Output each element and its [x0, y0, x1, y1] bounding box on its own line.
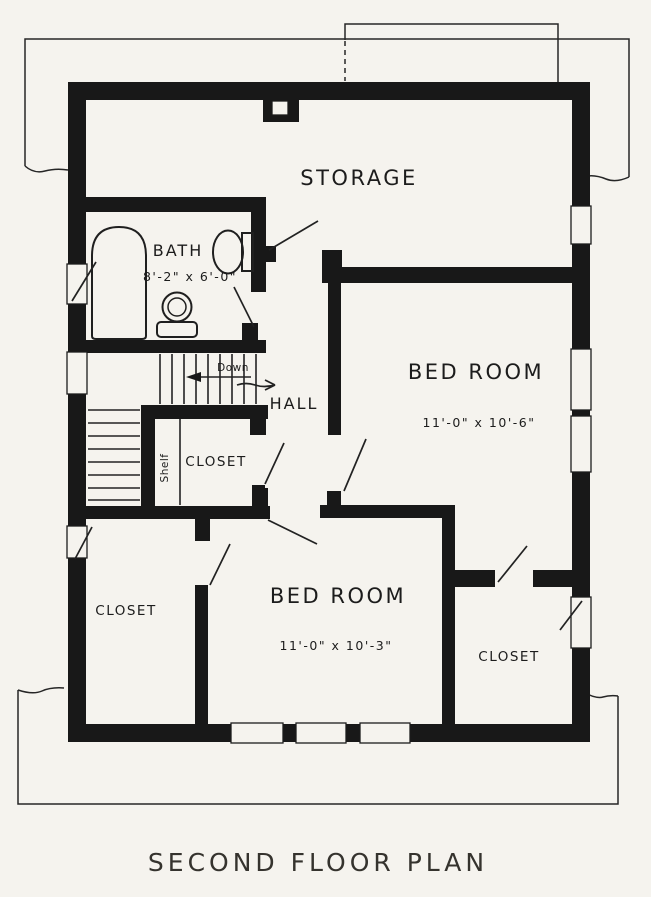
window [67, 352, 87, 394]
wall-hall-bottom-left [68, 506, 270, 519]
bathtub-icon [92, 227, 146, 339]
door-leaf [234, 287, 254, 327]
closet-left-label: CLOSET [95, 603, 156, 619]
door-leaf [269, 221, 318, 250]
window [571, 416, 591, 472]
bedroom-right-dims: 11'-0" x 10'-6" [423, 415, 536, 430]
window [571, 349, 591, 410]
wall-stairs-top [86, 340, 266, 353]
window [360, 723, 410, 743]
wall-stairs-bottom [148, 405, 268, 419]
wall-bedroom-right-top [340, 267, 590, 283]
bath-label: BATH [153, 241, 203, 260]
door-stub-hall-se [252, 488, 268, 506]
plan-caption: SECOND FLOOR PLAN [148, 848, 488, 877]
storage-label: STORAGE [300, 166, 417, 190]
window [571, 597, 591, 648]
window [296, 723, 346, 743]
door-stub-bedroom-bottom-left [195, 519, 210, 541]
hall-label: HALL [270, 394, 319, 413]
wall-exterior-left [68, 82, 86, 742]
window [571, 206, 591, 244]
wall-bath-top [68, 197, 265, 212]
closet-right-label: CLOSET [478, 649, 539, 665]
closet-center-label: CLOSET [185, 454, 246, 470]
door-stub-stairs-top [264, 246, 276, 262]
floor-plan-drawing: STORAGE BATH 8'-2" x 6'-0" BED ROOM 11'-… [0, 0, 651, 897]
stairs [88, 354, 275, 505]
lower-flight-treads [88, 410, 140, 500]
door-leaf [265, 443, 284, 484]
door-stub-bedroom-bottom-right [327, 491, 341, 505]
chimney-flue [272, 101, 288, 115]
window [67, 264, 87, 304]
bedroom-right-label: BED ROOM [408, 360, 544, 384]
roof-eave-top [25, 39, 629, 177]
roof-outline [18, 24, 629, 804]
wall-closet-right-top-b [533, 570, 590, 587]
wall-stair-closet [141, 405, 155, 506]
sink-icon [157, 293, 197, 338]
door-leaf [344, 439, 366, 491]
bedroom-bottom-label: BED ROOM [270, 584, 406, 608]
roof-break-bottom-left [18, 688, 64, 693]
bedroom-bottom-dims: 11'-0" x 10'-3" [280, 638, 393, 653]
bath-dims: 8'-2" x 6'-0" [143, 269, 237, 284]
wall-closet-right-top-a [455, 570, 495, 587]
floor-plan-page: STORAGE BATH 8'-2" x 6'-0" BED ROOM 11'-… [0, 0, 651, 897]
shelf-label: Shelf [159, 454, 171, 483]
wall-closet-left-divider [195, 585, 208, 724]
window [231, 723, 283, 743]
roof-break-right [588, 176, 629, 181]
door-stub-closet-center-top [250, 419, 266, 435]
chimney [263, 96, 299, 122]
door-leaf [210, 544, 230, 585]
roof-break-left [25, 166, 68, 172]
toilet-icon [213, 231, 253, 274]
door-leaf [498, 546, 527, 582]
wall-exterior-top [68, 82, 590, 100]
wall-closet-right-divider [442, 518, 455, 724]
door-stub-bath [242, 323, 258, 340]
wall-bedroom-right-left [328, 283, 341, 435]
down-label: Down [217, 362, 249, 374]
wall-bedroom-right-jamb [322, 250, 342, 283]
wall-hall-bottom-right [320, 505, 455, 518]
door-leaf [268, 520, 317, 544]
roof-eave-bottom [18, 690, 618, 804]
